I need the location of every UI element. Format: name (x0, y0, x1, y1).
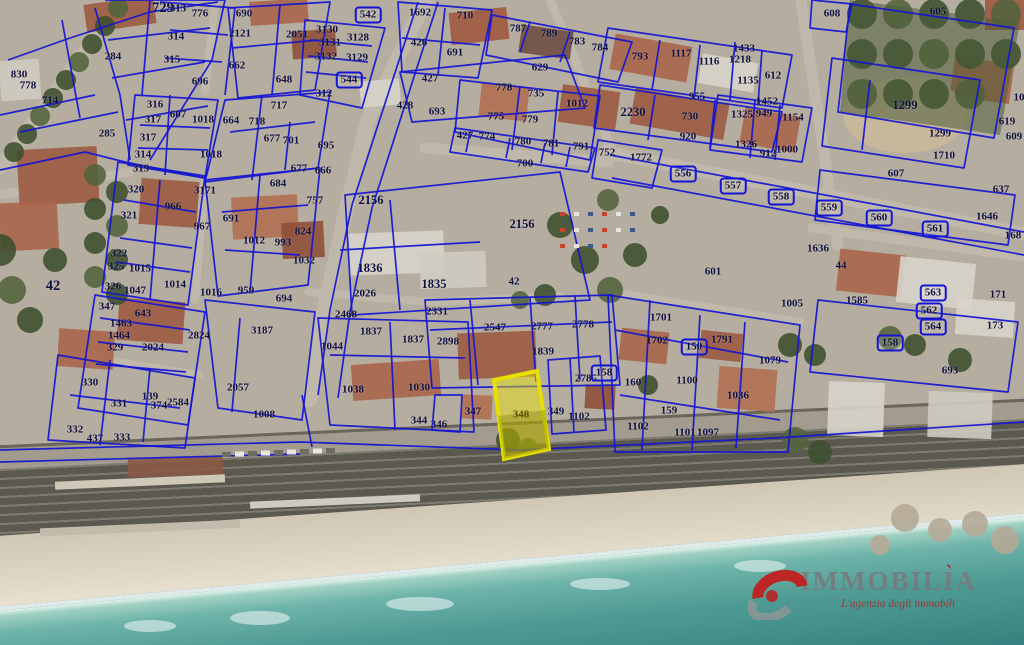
parcel-label: 556 (670, 166, 697, 183)
parcel-label: 601 (705, 267, 722, 278)
parcel-label: 158 (877, 335, 904, 352)
parcel-label: 684 (270, 179, 287, 190)
parcel-label: 1038 (342, 385, 364, 396)
parcel-label: 791 (573, 142, 590, 153)
parcel-label: 701 (283, 136, 300, 147)
parcel-label: 690 (236, 9, 253, 20)
parcel-label: 691 (447, 48, 464, 59)
parcel-label: 346 (431, 420, 448, 431)
parcel-label: 347 (465, 407, 482, 418)
parcel-label: 3131 (319, 38, 341, 49)
parcel-label: 2898 (437, 337, 459, 348)
parcel-labels: 7292848307787142853137763143156963166073… (0, 0, 1024, 645)
parcel-label: 374 (151, 401, 168, 412)
parcel-label: 2778 (572, 320, 594, 331)
parcel-label: 557 (720, 178, 747, 195)
parcel-label: 730 (682, 112, 699, 123)
parcel-label: 160 (625, 378, 642, 389)
highlighted-parcel-label: 348 (513, 410, 530, 421)
parcel-label: 718 (249, 117, 266, 128)
parcel-label: 44 (836, 261, 847, 272)
parcel-label: 1097 (697, 428, 719, 439)
parcel-label: 320 (128, 185, 145, 196)
parcel-label: 427 (457, 131, 474, 142)
parcel-label: 315 (164, 55, 181, 66)
parcel-label: 319 (133, 164, 150, 175)
parcel-label: 1030 (408, 383, 430, 394)
parcel-label: 717 (271, 101, 288, 112)
parcel-label: 710 (457, 11, 474, 22)
parcel-label: 428 (397, 101, 414, 112)
parcel-label: 171 (990, 290, 1007, 301)
parcel-label: 284 (105, 52, 122, 63)
parcel-label: 677 (291, 164, 308, 175)
parcel-label: 693 (429, 107, 446, 118)
parcel-label: 168 (1005, 231, 1022, 242)
parcel-label: 2121 (229, 29, 251, 40)
parcel-label: 609 (1006, 132, 1023, 143)
parcel-label: 1016 (200, 288, 222, 299)
parcel-label: 1014 (164, 280, 186, 291)
parcel-label: 949 (756, 109, 773, 120)
parcel-label: 1005 (781, 299, 803, 310)
parcel-label: 775 (488, 112, 505, 123)
parcel-label: 1839 (532, 347, 554, 358)
parcel-label: 150 (681, 339, 708, 356)
parcel-label: 563 (920, 285, 947, 302)
parcel-label: 607 (888, 169, 905, 180)
parcel-label: 1154 (782, 113, 803, 124)
parcel-label: 3171 (194, 186, 216, 197)
parcel-label: 1018 (200, 150, 222, 161)
parcel-label: 3187 (251, 326, 273, 337)
parcel-label: 1102 (627, 422, 648, 433)
parcel-label: 643 (135, 309, 152, 320)
parcel-label: 967 (194, 222, 211, 233)
parcel-label: 10 (1014, 93, 1024, 104)
parcel-label: 793 (632, 52, 649, 63)
parcel-label: 1299 (893, 99, 918, 112)
parcel-label: 1018 (192, 115, 214, 126)
cadastral-map: 7292848307787142853137763143156963166073… (0, 0, 1024, 645)
parcel-label: 781 (543, 139, 560, 150)
parcel-label: 1702 (646, 336, 668, 347)
parcel-label: 2824 (188, 331, 210, 342)
parcel-label: 677 (264, 134, 281, 145)
logo-tagline: L'agenzia degli immobili (808, 598, 988, 610)
parcel-label: 42 (46, 279, 61, 294)
parcel-label: 1135 (737, 76, 758, 87)
parcel-label: 1102 (568, 412, 589, 423)
parcel-label: 637 (993, 185, 1010, 196)
parcel-label: 1008 (253, 410, 275, 421)
parcel-label: 317 (140, 133, 157, 144)
parcel-label: 778 (20, 81, 37, 92)
immobilia-logo: IMMOBILIA ` L'agenzia degli immobili (748, 558, 998, 624)
parcel-label: 1299 (929, 129, 951, 140)
parcel-label: 1836 (358, 262, 383, 275)
parcel-label: 42 (509, 277, 520, 288)
parcel-label: 666 (315, 166, 332, 177)
parcel-label: 314 (135, 150, 152, 161)
parcel-label: 1032 (293, 256, 315, 267)
parcel-label: 330 (82, 378, 99, 389)
parcel-label: 1585 (846, 296, 868, 307)
parcel-label: 784 (592, 43, 609, 54)
parcel-label: 558 (768, 189, 795, 206)
parcel-label: 332 (67, 425, 84, 436)
parcel-label: 695 (318, 141, 335, 152)
parcel-label: 1646 (976, 212, 998, 223)
parcel-label: 648 (276, 75, 293, 86)
parcel-label: 427 (422, 74, 439, 85)
parcel-label: 1012 (566, 99, 588, 110)
parcel-label: 1636 (807, 244, 829, 255)
parcel-label: 776 (192, 9, 209, 20)
parcel-label: 1772 (630, 153, 652, 164)
parcel-label: 1079 (759, 356, 781, 367)
parcel-label: 774 (479, 132, 496, 143)
parcel-label: 542 (355, 7, 382, 24)
parcel-label: 696 (192, 77, 209, 88)
parcel-label: 1701 (650, 313, 672, 324)
parcel-label: 3130 (316, 25, 338, 36)
parcel-label: 779 (522, 115, 539, 126)
parcel-label: 2156 (359, 194, 384, 207)
parcel-label: 317 (145, 115, 162, 126)
parcel-label: 1117 (671, 49, 692, 60)
parcel-label: 344 (411, 416, 428, 427)
parcel-label: 159 (661, 406, 678, 417)
parcel-label: 1464 (108, 331, 130, 342)
parcel-label: 325 (108, 262, 125, 273)
parcel-label: 426 (411, 38, 428, 49)
parcel-label: 966 (165, 202, 182, 213)
parcel-label: 312 (316, 89, 333, 100)
parcel-label: 783 (569, 37, 586, 48)
parcel-label: 2026 (354, 289, 376, 300)
parcel-label: 3132 (315, 52, 337, 63)
parcel-label: 1036 (727, 391, 749, 402)
parcel-label: 787 (510, 24, 527, 35)
parcel-label: 322 (111, 249, 128, 260)
parcel-label: 285 (99, 129, 116, 140)
parcel-label: 1116 (699, 57, 720, 68)
parcel-label: 559 (816, 200, 843, 217)
parcel-label: 605 (930, 7, 947, 18)
parcel-label: 321 (121, 211, 138, 222)
parcel-label: 608 (824, 9, 841, 20)
parcel-label: 544 (336, 72, 363, 89)
parcel-label: 1452 (756, 97, 778, 108)
parcel-label: 2051 (286, 30, 308, 41)
parcel-label: 664 (223, 116, 240, 127)
parcel-label: 3128 (347, 33, 369, 44)
parcel-label: 1326 (735, 140, 757, 151)
parcel-label: 752 (599, 148, 616, 159)
parcel-label: 1837 (402, 335, 424, 346)
parcel-label: 993 (275, 238, 292, 249)
parcel-label: 1101 (674, 428, 695, 439)
parcel-label: 3129 (346, 53, 368, 64)
parcel-label: 1791 (711, 335, 733, 346)
parcel-label: 2331 (426, 307, 448, 318)
parcel-label: 735 (528, 89, 545, 100)
parcel-label: 326 (105, 282, 122, 293)
parcel-label: 693 (942, 366, 959, 377)
parcel-label: 1100 (676, 376, 697, 387)
parcel-label: 2468 (335, 310, 357, 321)
parcel-label: 2777 (531, 322, 553, 333)
parcel-label: 560 (866, 210, 893, 227)
parcel-label: 629 (532, 63, 549, 74)
parcel-label: 1463 (110, 319, 132, 330)
parcel-label: 1047 (124, 286, 146, 297)
parcel-label: 912 (760, 149, 777, 160)
parcel-label: 714 (42, 96, 59, 107)
parcel-label: 1710 (933, 151, 955, 162)
parcel-label: 1012 (243, 236, 265, 247)
parcel-label: 349 (548, 407, 565, 418)
parcel-label: 694 (276, 294, 293, 305)
parcel-label: 778 (496, 83, 513, 94)
parcel-label: 2584 (167, 398, 189, 409)
parcel-label: 316 (147, 100, 164, 111)
parcel-label: 619 (999, 117, 1016, 128)
parcel-label: 1044 (321, 342, 343, 353)
parcel-label: 662 (229, 61, 246, 72)
parcel-label: 2156 (510, 218, 535, 231)
parcel-label: 789 (541, 29, 558, 40)
parcel-label: 158 (591, 365, 618, 382)
parcel-label: 314 (168, 32, 185, 43)
parcel-label: 173 (987, 321, 1004, 332)
parcel-label: 955 (689, 92, 706, 103)
parcel-label: 564 (920, 319, 947, 336)
parcel-label: 333 (114, 433, 131, 444)
parcel-label: 329 (107, 343, 124, 354)
parcel-label: 1837 (360, 327, 382, 338)
parcel-label: 437 (87, 434, 104, 445)
logo-swirl-icon (748, 558, 808, 620)
parcel-label: 1835 (422, 278, 447, 291)
parcel-label: 2057 (227, 383, 249, 394)
parcel-label: 824 (295, 227, 312, 238)
parcel-label: 2547 (484, 323, 506, 334)
parcel-label: 920 (680, 132, 697, 143)
parcel-label: 331 (111, 399, 128, 410)
parcel-label: 780 (515, 137, 532, 148)
parcel-label: 562 (916, 303, 943, 320)
parcel-label: 1015 (129, 264, 151, 275)
parcel-label: 691 (223, 214, 240, 225)
parcel-label: 607 (170, 110, 187, 121)
parcel-label: 757 (307, 196, 324, 207)
parcel-label: 313 (170, 4, 187, 15)
parcel-label: 1218 (729, 55, 751, 66)
parcel-label: 2024 (142, 343, 164, 354)
parcel-label: 347 (99, 302, 116, 313)
parcel-label: 959 (238, 286, 255, 297)
parcel-label: 612 (765, 71, 782, 82)
parcel-label: 2230 (621, 106, 646, 119)
parcel-label: 1692 (409, 8, 431, 19)
parcel-label: 1000 (776, 145, 798, 156)
parcel-label: 1325 (731, 110, 753, 121)
parcel-label: 561 (922, 221, 949, 238)
parcel-label: 700 (517, 159, 534, 170)
